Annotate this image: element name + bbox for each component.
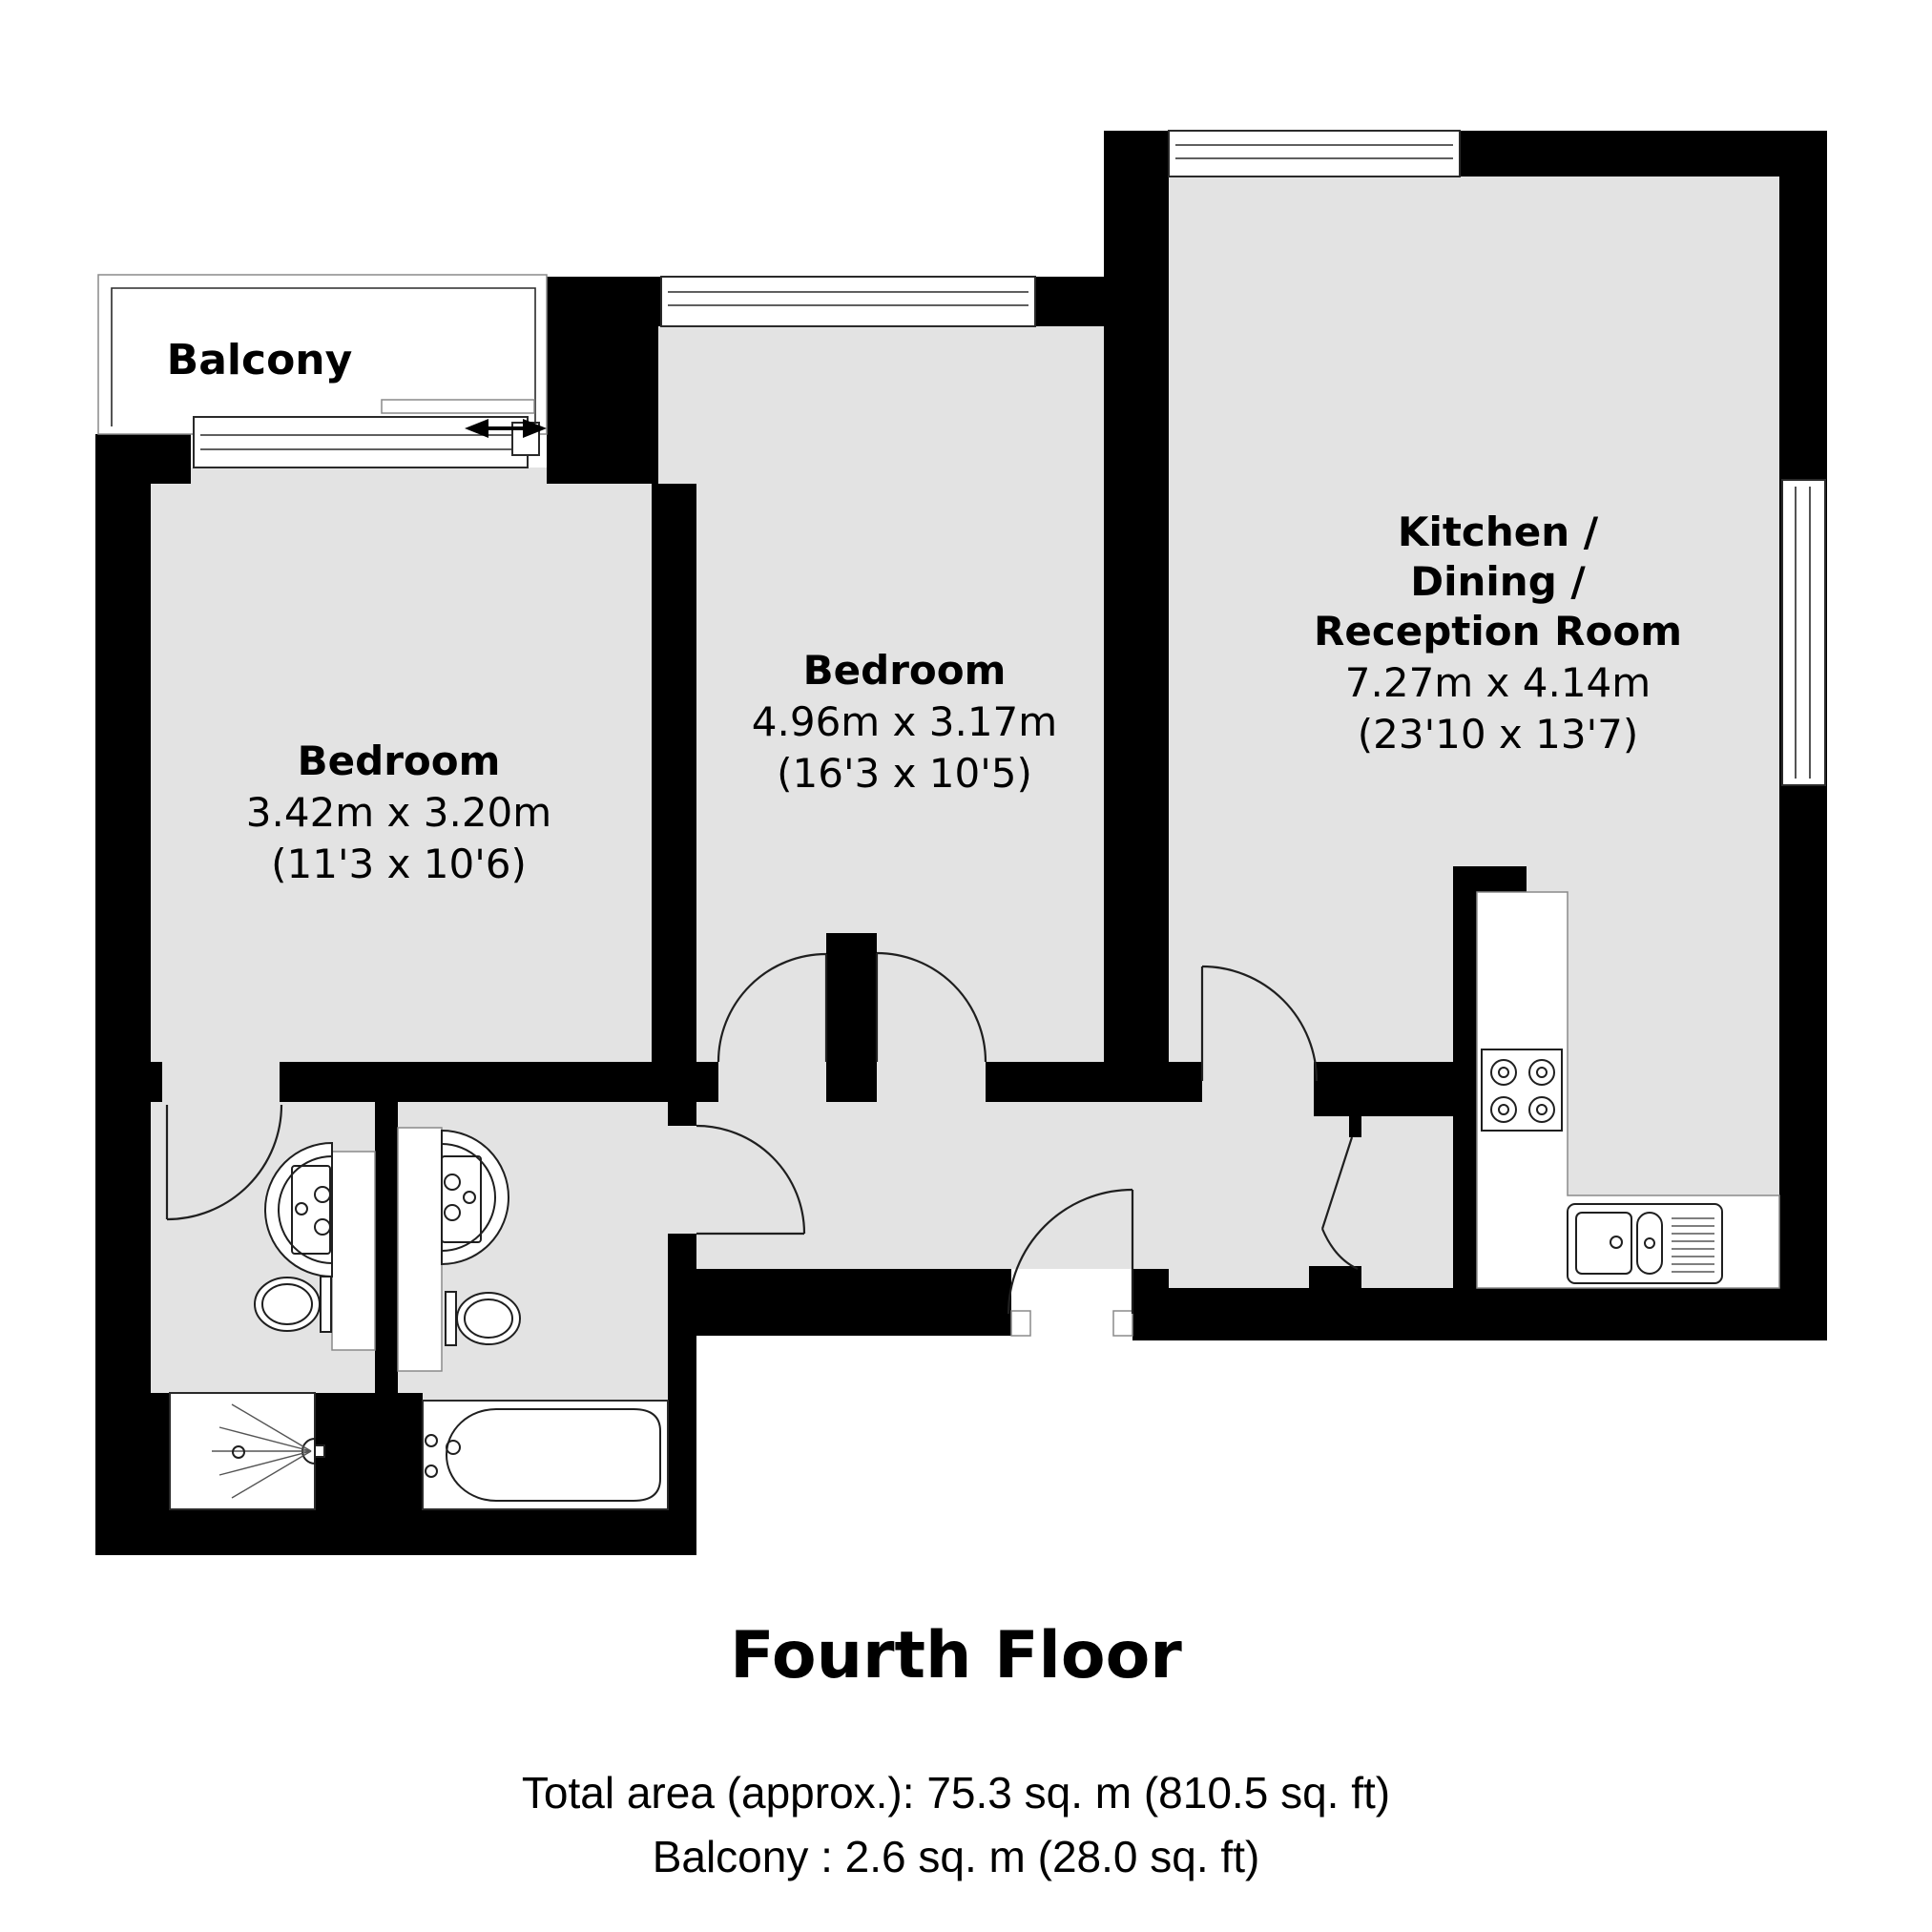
window <box>1169 131 1460 177</box>
wall-segment <box>1453 866 1477 1288</box>
wall-segment <box>1349 1116 1361 1137</box>
door-frame <box>1113 1311 1132 1336</box>
room-dims-imperial: (11'3 x 10'6) <box>271 841 527 887</box>
doorway-threshold <box>162 1062 280 1102</box>
toilet-symbol <box>446 1292 520 1345</box>
bathtub-symbol <box>423 1401 668 1509</box>
doorway-threshold <box>718 1062 826 1102</box>
doorway-threshold <box>877 1062 986 1102</box>
toilet-symbol <box>255 1277 331 1332</box>
floor-plan-drawing: Balcony Bedroom 3.42m x 3.20m (11'3 x 10… <box>0 0 1932 1932</box>
hallway-floor <box>696 1102 1202 1269</box>
wall-segment <box>547 326 658 484</box>
room-name-line2: Dining / <box>1410 558 1586 605</box>
wall-segment <box>151 1062 162 1102</box>
entrance-opening <box>1011 1269 1132 1340</box>
wall-segment <box>95 434 191 484</box>
window <box>661 277 1035 326</box>
vanity-counter <box>332 1152 375 1350</box>
total-area-text: Total area (approx.): 75.3 sq. m (810.5 … <box>522 1768 1390 1818</box>
wall-segment <box>986 1062 1202 1102</box>
wall-segment <box>652 484 696 1062</box>
room-name-line3: Reception Room <box>1314 608 1682 654</box>
balcony-sill <box>382 400 534 413</box>
wall-segment <box>1314 1062 1453 1116</box>
wall-segment <box>95 434 151 1555</box>
room-dims-imperial: (16'3 x 10'5) <box>777 750 1032 797</box>
wall-segment <box>1453 866 1527 892</box>
doorway-threshold <box>1202 1062 1314 1102</box>
wall-segment <box>668 1234 696 1555</box>
wall-segment <box>375 1102 398 1393</box>
wall-segment <box>696 1269 1011 1336</box>
room-dims-imperial: (23'10 x 13'7) <box>1358 711 1638 758</box>
wall-segment <box>826 933 877 1102</box>
wall-segment <box>95 1509 696 1555</box>
door-frame <box>1011 1311 1030 1336</box>
doorway-threshold <box>668 1126 696 1234</box>
room-name-line1: Kitchen / <box>1398 509 1599 555</box>
wall-segment <box>668 1102 696 1126</box>
bedroom-2-floor <box>658 326 1104 1062</box>
room-dims-metric: 3.42m x 3.20m <box>246 789 551 836</box>
wall-segment <box>1309 1266 1361 1288</box>
room-name: Bedroom <box>803 647 1007 694</box>
wall-segment <box>1132 1288 1818 1340</box>
wall-segment <box>1460 131 1819 177</box>
wall-segment <box>146 1393 170 1509</box>
room-name: Bedroom <box>298 737 501 784</box>
wall-segment <box>315 1393 423 1509</box>
room-dims-metric: 4.96m x 3.17m <box>752 698 1057 745</box>
balcony-label: Balcony <box>167 336 353 384</box>
wall-segment <box>547 277 660 326</box>
vanity-counter <box>398 1128 442 1371</box>
hob-symbol <box>1482 1049 1562 1131</box>
wall-segment <box>1104 131 1169 1081</box>
room-dims-metric: 7.27m x 4.14m <box>1345 659 1651 706</box>
balcony-area-text: Balcony : 2.6 sq. m (28.0 sq. ft) <box>653 1832 1260 1881</box>
floor-title: Fourth Floor <box>730 1618 1182 1693</box>
window <box>1782 480 1825 785</box>
wall-segment <box>280 1062 718 1102</box>
shower-symbol <box>170 1393 324 1509</box>
kitchen-sink-symbol <box>1568 1204 1722 1283</box>
floor-plan-page: Balcony Bedroom 3.42m x 3.20m (11'3 x 10… <box>0 0 1932 1932</box>
wall-segment <box>1035 277 1104 326</box>
